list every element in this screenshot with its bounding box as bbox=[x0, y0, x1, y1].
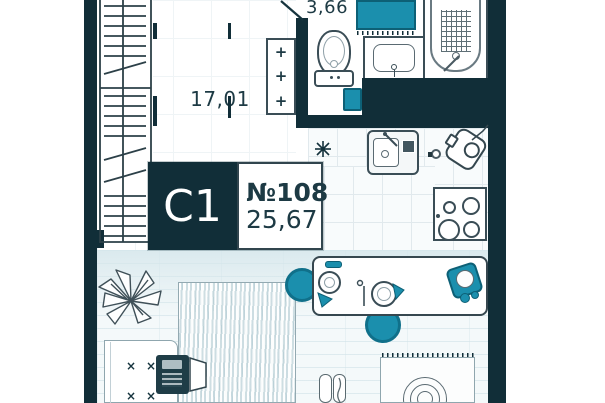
ironing-board bbox=[333, 374, 346, 403]
rug bbox=[380, 357, 475, 403]
plus-mark: + bbox=[275, 92, 288, 110]
stove-burner bbox=[443, 201, 456, 214]
door-jamb bbox=[228, 96, 231, 118]
bathroom-area-label: 3,66 bbox=[302, 0, 352, 18]
toilet-button bbox=[337, 76, 340, 79]
washbasin bbox=[363, 36, 425, 82]
plate-inner bbox=[324, 277, 335, 288]
wall-pier bbox=[97, 230, 104, 248]
laptop-keyboard bbox=[162, 373, 182, 387]
washbasin-tap-stem bbox=[394, 70, 396, 77]
sink-drainer bbox=[402, 140, 415, 153]
bathtub-drain bbox=[452, 52, 460, 60]
bathtub-mat bbox=[441, 10, 471, 52]
unit-number: №108 bbox=[246, 179, 321, 206]
plus-mark: + bbox=[275, 67, 288, 85]
kitchen-sink bbox=[367, 130, 419, 175]
living-room-area-label: 17,01 bbox=[188, 87, 252, 111]
toilet bbox=[313, 28, 355, 89]
ironing-board bbox=[319, 374, 332, 403]
door-jamb bbox=[153, 96, 157, 126]
door-jamb bbox=[228, 23, 231, 39]
toilet-button bbox=[330, 76, 333, 79]
sink-drain bbox=[381, 150, 389, 158]
floor-plan-canvas: × × × × bbox=[0, 0, 605, 403]
bathroom-left-wall bbox=[296, 18, 308, 128]
rug-spiral bbox=[403, 377, 447, 403]
chair-foot bbox=[471, 291, 479, 299]
wardrobe bbox=[97, 0, 153, 243]
unit-info-box: №108 25,67 bbox=[237, 162, 323, 250]
toilet-tank bbox=[314, 70, 354, 87]
furniture-cross-mark: × bbox=[146, 360, 156, 372]
door-jamb bbox=[153, 23, 157, 39]
chair-plate bbox=[456, 270, 474, 288]
stove-knob bbox=[436, 214, 440, 218]
chair-foot bbox=[460, 293, 470, 303]
desk-edge-line bbox=[110, 342, 111, 403]
bath-mat-fringe bbox=[357, 31, 415, 35]
laptop-screen-glare bbox=[162, 360, 182, 369]
unit-type-box: С1 bbox=[148, 162, 237, 250]
furniture-cross-mark: × bbox=[146, 390, 156, 402]
left-wall bbox=[84, 0, 97, 403]
furniture-cross-mark: × bbox=[126, 360, 136, 372]
toilet-drain bbox=[330, 60, 338, 68]
furniture-cross-mark: × bbox=[126, 390, 136, 402]
stove bbox=[433, 187, 487, 241]
unit-type-label: С1 bbox=[163, 181, 222, 232]
trash-bin bbox=[343, 88, 362, 111]
wall-outlet bbox=[431, 149, 441, 159]
bathtub bbox=[423, 0, 488, 80]
stove-burner bbox=[438, 219, 460, 241]
bed bbox=[178, 282, 296, 403]
stove-burner bbox=[463, 221, 480, 238]
bathroom-fixture-wall bbox=[362, 78, 488, 118]
unit-total-area: 25,67 bbox=[246, 206, 321, 233]
bath-mat bbox=[356, 0, 416, 30]
radiator-vent: + + + bbox=[266, 38, 296, 115]
stove-burner bbox=[462, 197, 480, 215]
unit-badge[interactable]: С1 №108 25,67 bbox=[148, 162, 323, 250]
plus-mark: + bbox=[275, 43, 288, 61]
plate-inner bbox=[377, 287, 391, 301]
phone bbox=[325, 261, 342, 268]
wall-outlet-pin bbox=[428, 152, 432, 157]
right-wall bbox=[488, 0, 506, 403]
